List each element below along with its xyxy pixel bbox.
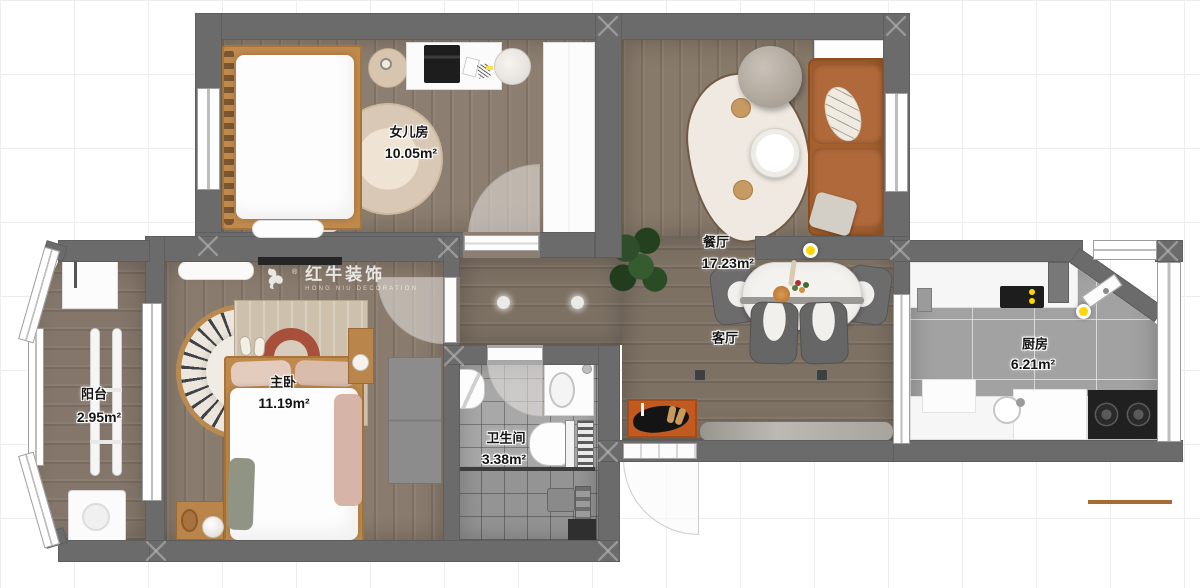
- label-living-room: 客厅: [712, 328, 738, 347]
- bread-basket: [773, 286, 790, 303]
- kitchen-small-appliance: [917, 288, 932, 312]
- watermark-title: 红牛装饰: [305, 266, 418, 283]
- wall-tv: [258, 257, 342, 265]
- wall-joint-mark: [886, 16, 906, 36]
- area-balcony: 2.95m²: [77, 409, 121, 425]
- entry-candle: [641, 403, 644, 416]
- entry-door-leaf: [623, 443, 697, 459]
- wall-joint-mark: [890, 240, 910, 260]
- kitchen-window-right: [1157, 262, 1181, 442]
- corridor-light-1: [497, 296, 510, 309]
- wall-daughter-sofa-divider: [595, 13, 622, 258]
- nightstand-left-basket: [181, 509, 198, 532]
- wall-joint-mark: [146, 541, 166, 561]
- wall-balcony-top: [58, 240, 150, 262]
- stove-knob-1: [1029, 289, 1035, 295]
- master-balcony-window: [142, 303, 162, 501]
- watermark: ® 红牛装饰 HONG NIU DECORATION: [262, 266, 418, 292]
- living-room-window: [885, 93, 908, 192]
- daughter-bed-bench: [252, 220, 324, 238]
- piano-keyboard: [424, 45, 460, 83]
- label-master-bedroom: 主卧: [270, 372, 296, 391]
- sink-faucet: [1016, 398, 1025, 407]
- wall-kitchen-bottom: [893, 440, 1183, 462]
- daughter-mattress: [236, 55, 354, 219]
- label-balcony: 阳台: [81, 384, 107, 403]
- vanity-accessory: [582, 364, 592, 374]
- wall-joint-mark: [198, 236, 218, 256]
- label-kitchen: 厨房: [1022, 334, 1048, 353]
- shower-mat: [568, 519, 596, 542]
- floor-plan: ® 红牛装饰 HONG NIU DECORATION 女儿房 10.05m² 餐…: [0, 0, 1200, 588]
- dining-chair-bottom-2: [799, 301, 849, 365]
- balcony-window-left: [28, 328, 44, 466]
- toilet: [529, 422, 567, 466]
- side-stool-top: [731, 98, 751, 118]
- cooktop-burner-2: [1126, 402, 1151, 427]
- floor-socket-left: [694, 369, 706, 381]
- drying-rack-cross-2: [90, 440, 122, 444]
- master-door-leaf: [444, 277, 457, 343]
- area-daughter-room: 10.05m²: [385, 145, 437, 161]
- threshold-line: [1088, 500, 1172, 504]
- corridor-light-2: [571, 296, 584, 309]
- coffee-table: [750, 128, 800, 178]
- desk-highlight: [486, 66, 493, 70]
- cooktop-burner-1: [1094, 402, 1119, 427]
- pouf-chair: [738, 46, 802, 108]
- stove-knob-2: [1029, 298, 1035, 304]
- nightstand-left-lamp: [202, 516, 224, 538]
- corner-basin: [459, 369, 485, 409]
- sofa-console: [814, 40, 888, 60]
- area-master-bedroom: 11.19m²: [258, 395, 309, 411]
- master-throw-gray: [227, 458, 255, 531]
- side-stool-bottom: [733, 180, 753, 200]
- vanity-basin: [549, 372, 575, 408]
- kitchen-window-top: [1093, 240, 1157, 260]
- wall-joint-mark: [598, 541, 618, 561]
- wall-joint-mark: [1158, 241, 1178, 261]
- daughter-door-leaf: [464, 235, 539, 251]
- wall-top: [195, 13, 910, 40]
- wall-kitchen-top: [893, 240, 1083, 262]
- master-wardrobe: [388, 357, 442, 484]
- table-flowers: [795, 280, 801, 286]
- registered-mark: ®: [292, 269, 297, 276]
- built-in-stove: [1000, 286, 1044, 308]
- kitchen-cabinet-2: [1013, 389, 1087, 440]
- daughter-room-window: [197, 88, 220, 190]
- label-daughter-room: 女儿房: [389, 122, 428, 141]
- wall-joint-mark: [598, 442, 618, 462]
- kitchen-cabinet-1: [922, 379, 976, 413]
- area-dining-room: 17.23m²: [702, 255, 754, 271]
- washing-machine-drum: [82, 503, 110, 531]
- shower-set: [547, 488, 575, 512]
- daughter-table-lamp: [380, 58, 392, 70]
- kitchen-ceiling-light: [1076, 304, 1091, 319]
- toilet-tank: [565, 420, 575, 468]
- kitchen-pass-door: [893, 294, 910, 444]
- dining-ceiling-light: [803, 243, 818, 258]
- balcony-mop: [74, 258, 77, 288]
- corridor-floor: [460, 258, 622, 345]
- master-blanket-pink: [334, 394, 362, 506]
- label-dining-room: 餐厅: [703, 232, 729, 251]
- kitchen-door-handle: [1103, 288, 1109, 294]
- wall-joint-mark: [444, 346, 464, 366]
- drying-rack-bar-2: [112, 328, 122, 476]
- shoe-cabinet: [700, 422, 893, 441]
- bathroom-door-leaf: [487, 347, 543, 361]
- fridge: [1048, 262, 1069, 303]
- floor-socket-right: [816, 369, 828, 381]
- wall-dining-half: [755, 236, 910, 260]
- nightstand-right-lamp: [352, 354, 369, 371]
- master-pillow-2: [295, 360, 356, 387]
- wall-balcony-bottom: [58, 540, 150, 562]
- label-bathroom: 卫生间: [486, 428, 525, 447]
- wall-joint-mark: [438, 238, 458, 258]
- area-kitchen: 6.21m²: [1011, 356, 1055, 372]
- entry-door-arc: [623, 459, 699, 535]
- dining-chair-bottom-1: [749, 301, 799, 365]
- master-dresser: [178, 261, 254, 280]
- daughter-bed-garland: [224, 50, 234, 225]
- hongniu-logo-icon: [262, 266, 288, 292]
- watermark-subtitle: HONG NIU DECORATION: [305, 286, 418, 292]
- area-bathroom: 3.38m²: [482, 451, 526, 467]
- desk-chair: [494, 48, 531, 85]
- shower-partition: [458, 467, 595, 471]
- balcony-cabinet: [62, 255, 118, 309]
- wall-joint-mark: [598, 16, 618, 36]
- wall-bottom-left: [145, 540, 620, 562]
- towel-radiator: [577, 420, 594, 470]
- daughter-wardrobe: [543, 42, 595, 238]
